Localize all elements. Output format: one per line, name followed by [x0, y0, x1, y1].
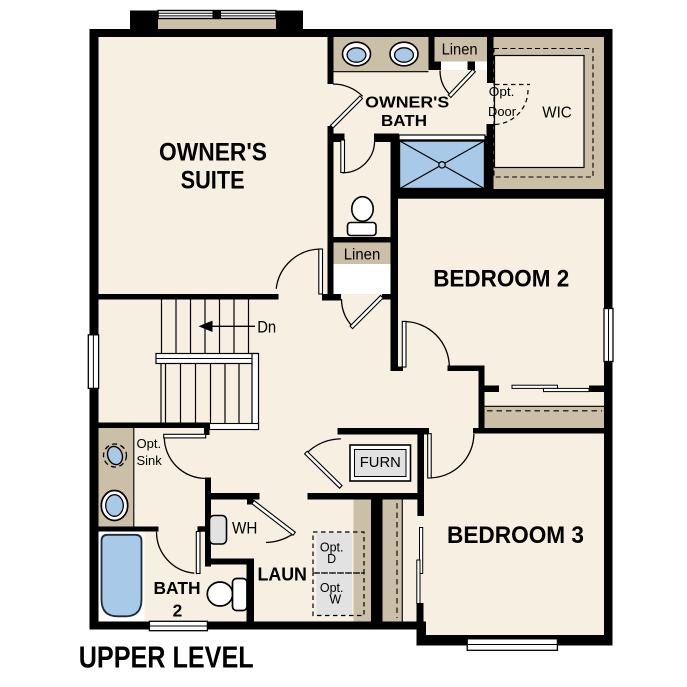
svg-text:BEDROOM 3: BEDROOM 3	[447, 523, 584, 549]
svg-text:WH: WH	[232, 520, 257, 538]
svg-text:BEDROOM 2: BEDROOM 2	[433, 266, 569, 292]
svg-text:BATH: BATH	[381, 113, 427, 130]
svg-text:LAUN: LAUN	[257, 564, 307, 584]
svg-text:OWNER'S: OWNER'S	[365, 94, 449, 111]
svg-text:UPPER LEVEL: UPPER LEVEL	[79, 639, 254, 674]
svg-text:Opt.: Opt.	[489, 84, 515, 99]
svg-text:Dn: Dn	[257, 319, 276, 337]
svg-text:FURN: FURN	[360, 455, 401, 471]
svg-text:Linen: Linen	[442, 42, 478, 59]
svg-text:BATH: BATH	[154, 578, 201, 598]
svg-text:Opt.: Opt.	[137, 436, 162, 451]
svg-text:OWNER'S: OWNER'S	[159, 139, 267, 167]
svg-text:D: D	[327, 552, 336, 566]
svg-text:Sink: Sink	[137, 453, 163, 468]
svg-text:Door: Door	[488, 104, 517, 119]
svg-text:WIC: WIC	[542, 105, 572, 122]
svg-text:SUITE: SUITE	[181, 167, 245, 195]
svg-text:Linen: Linen	[344, 246, 381, 263]
svg-text:W: W	[329, 593, 341, 607]
svg-text:2: 2	[173, 601, 183, 621]
